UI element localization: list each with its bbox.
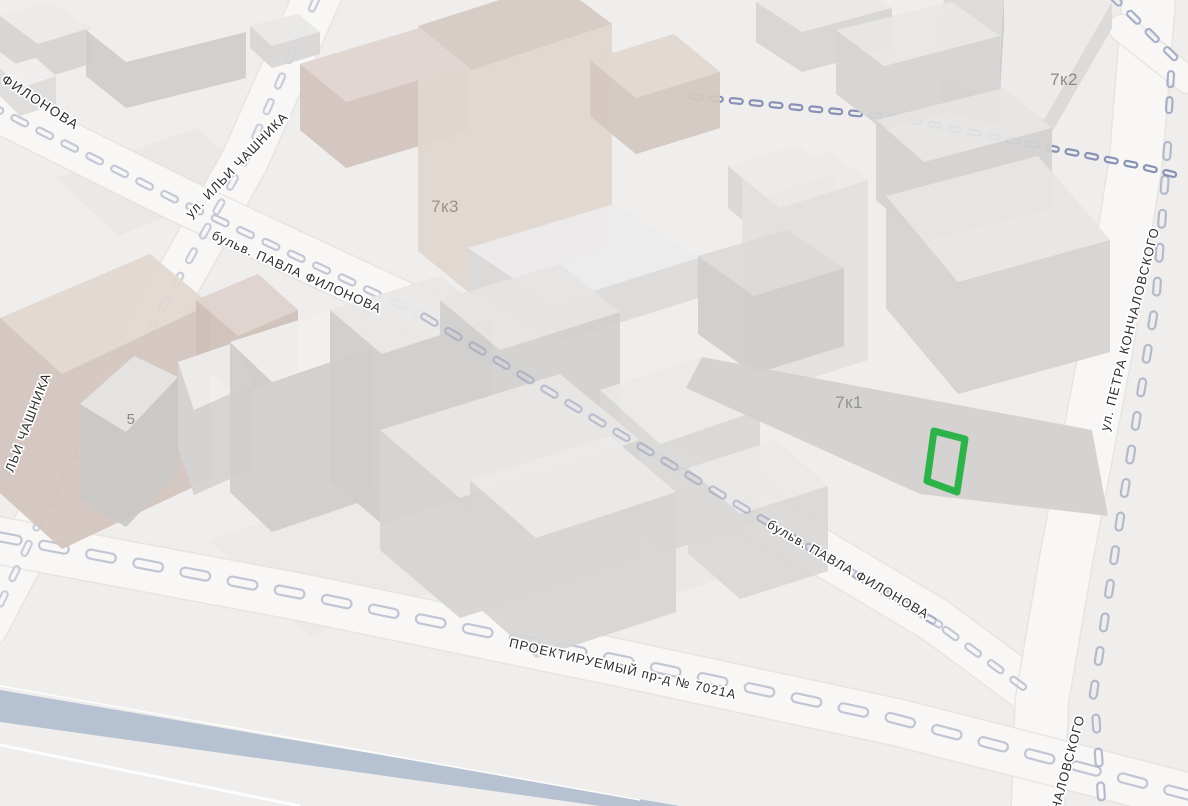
building-side-face — [418, 26, 472, 295]
building-number-label: 7к1 — [835, 393, 863, 412]
map-view[interactable]: ФИЛОНОВАул. ИЛЬИ ЧАШНИКАбульв. ПАВЛА ФИЛ… — [0, 0, 1188, 806]
map-canvas[interactable]: ФИЛОНОВАул. ИЛЬИ ЧАШНИКАбульв. ПАВЛА ФИЛ… — [0, 0, 1188, 806]
building-number-label: 7к2 — [1050, 70, 1078, 89]
building-number-label: 7к3 — [431, 197, 459, 216]
building-number-label: 5 — [127, 411, 136, 428]
